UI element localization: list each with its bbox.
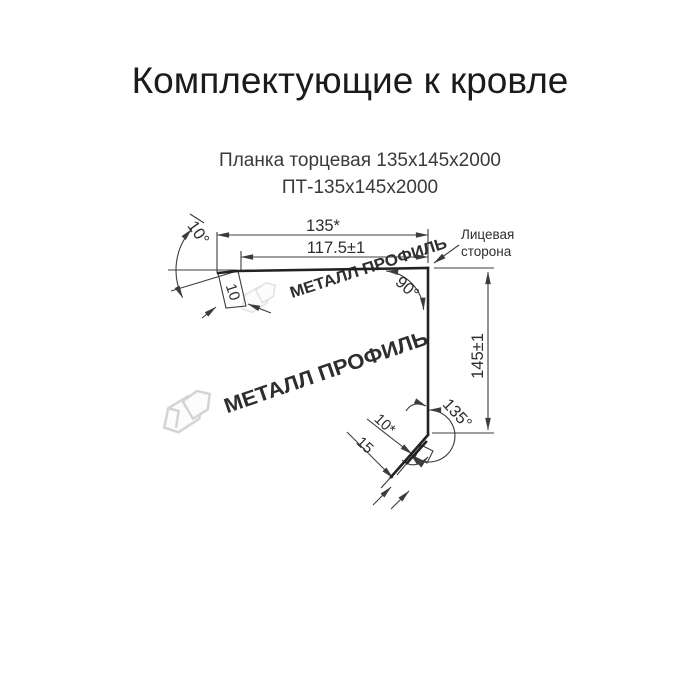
dim-left-angle-label: 10° [183,218,212,249]
bottom-flange-extension [381,477,391,488]
watermark-text: МЕТАЛЛ ПРОФИЛЬ [221,327,431,418]
drawing-page: Комплектующие к кровле Планка торцевая 1… [0,0,700,700]
dim-top-width-label: 135* [306,217,341,235]
left-flange-arrow-left [202,307,216,318]
metall-profil-logo-icon [156,387,218,436]
face-side-label-line1: Лицевая [461,227,514,242]
metall-profil-logo-icon [237,280,281,315]
dim-right-angle-label: 90° [392,273,423,303]
face-side-label-line2: сторона [461,244,512,259]
dim-side-height-label: 145±1 [469,333,487,379]
dim-bottom-flange-label: 15 [353,433,377,457]
dim-left-flange-label: 10 [222,282,243,303]
profile-drawing: МЕТАЛЛ ПРОФИЛЬ МЕТАЛЛ ПРОФИЛЬ [0,0,700,700]
bottom-outside-arrow-right [391,491,409,509]
bottom-outside-arrow-left [373,487,391,505]
dim-hem-label: 10* [371,410,399,438]
bottom-angle-curl-arrow [406,404,426,411]
dim-bottom-angle-label: 135° [439,395,475,432]
profile-top-flange [218,268,428,273]
dim-top-inner-width-label: 117.5±1 [307,239,365,257]
